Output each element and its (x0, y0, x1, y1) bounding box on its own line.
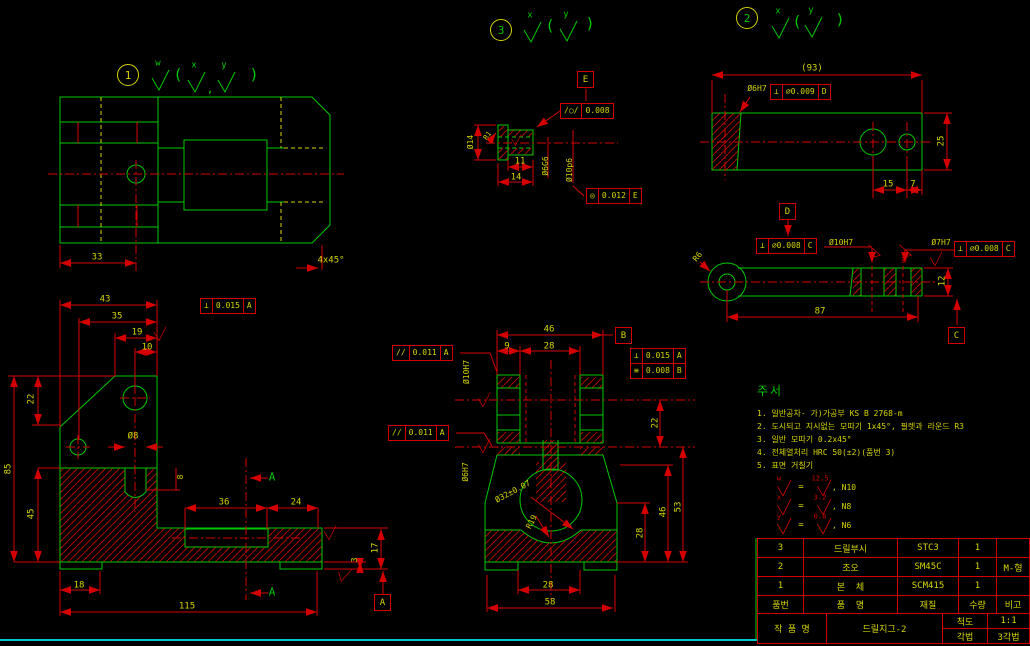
header-material: 재질 (897, 596, 958, 613)
dim-label: 25 (938, 136, 947, 147)
fcf-cell: A (243, 299, 255, 313)
dim-label: 15 (883, 181, 894, 190)
dim-label: Ø6H7 (747, 85, 766, 93)
dim-label: ( (173, 68, 182, 83)
feature-control-frame: ⊥0.015A (630, 348, 686, 364)
part-material: STC3 (897, 539, 958, 557)
view-callout-1: 1 (117, 64, 139, 86)
dim-label: ( (792, 15, 801, 30)
dim-label: 28 (637, 528, 646, 539)
fcf-cell: 0.012 (598, 189, 629, 203)
surface-finish-icon (928, 251, 943, 266)
part-no: 1 (758, 577, 803, 595)
part-no: 2 (758, 558, 803, 576)
header-name: 품 명 (803, 596, 897, 613)
part-row: 1 본 체 SCM415 1 (758, 576, 1029, 595)
feature-control-frame: /○/0.008 (560, 103, 614, 119)
fcf-cell: ⊥ (771, 85, 782, 99)
dim-label: ) (585, 17, 594, 32)
fcf-cell: // (393, 346, 409, 360)
view-callout-2: 2 (736, 7, 758, 29)
part-note (996, 539, 1029, 557)
fcf-cell: ≡ (631, 364, 642, 378)
surface-finish-icon (215, 71, 237, 93)
feature-control-frame: //0.011A (388, 425, 449, 441)
header-no: 품번 (758, 596, 803, 613)
part-qty: 1 (958, 539, 996, 557)
part-note (996, 577, 1029, 595)
part-name: 본 체 (803, 577, 897, 595)
scale-value: 1:1 (987, 614, 1029, 628)
feature-control-frame: ⊥0.015A (200, 298, 256, 314)
datum-label-C: C (948, 327, 965, 344)
dim-label: 3 (351, 558, 359, 563)
dim-label: , (207, 84, 214, 95)
part-qty: 1 (958, 558, 996, 576)
fcf-cell: ∅0.008 (966, 242, 1002, 256)
dim-label: Ø14 (467, 135, 475, 149)
dim-label: 12 (939, 276, 948, 287)
dim-label: 36 (219, 499, 230, 508)
scale-label: 척도 (943, 614, 987, 628)
part-qty: 1 (958, 577, 996, 595)
surface-finish-icon (149, 69, 171, 91)
feature-control-frame: ⊥∅0.008C (756, 238, 817, 254)
dim-label: Ø6H7 (462, 462, 470, 481)
dim-label: (93) (801, 65, 823, 74)
finish-value: 3.2 (814, 495, 827, 502)
dim-label: x (527, 12, 532, 21)
fcf-cell: A (673, 349, 685, 363)
fcf-cell: 0.015 (642, 349, 673, 363)
dim-label: Ø7H7 (931, 239, 950, 247)
fcf-cell: 0.011 (409, 346, 440, 360)
dim-label: 11 (515, 158, 526, 167)
dim-label: 7 (910, 181, 915, 190)
finish-equals: = (798, 503, 803, 512)
dim-label: Ø10p6 (566, 158, 574, 182)
fcf-cell: ∅0.008 (768, 239, 804, 253)
finish-grade: , N6 (832, 522, 851, 530)
datum-label-A: A (374, 594, 391, 611)
surface-finish-icon (510, 134, 522, 146)
dim-label: 35 (112, 313, 123, 322)
fcf-cell: ◎ (587, 189, 598, 203)
dim-label: 19 (132, 329, 143, 338)
finish-letter: x (777, 495, 781, 502)
surface-finish-icon (476, 438, 491, 453)
header-row: 품번 품 명 재질 수량 비고 (758, 595, 1029, 613)
feature-control-frame: //0.011A (392, 345, 453, 361)
dim-label: 28 (543, 582, 554, 591)
dim-label: 18 (74, 582, 85, 591)
fcf-cell: // (389, 426, 405, 440)
surface-finish-icon (185, 71, 207, 93)
dim-label: x (775, 8, 780, 17)
fcf-cell: D (818, 85, 830, 99)
dim-label: y (808, 7, 813, 16)
dim-label: 22 (28, 394, 37, 405)
title-block: 3 드릴부시 STC3 1 2 조오 SM45C 1 M-형 1 본 체 SCM… (757, 538, 1030, 644)
header-note: 비고 (996, 596, 1029, 613)
surface-finish-icon (769, 17, 791, 39)
finish-value: 12.5 (812, 476, 829, 483)
fcf-cell: E (629, 189, 641, 203)
finish-value: 0.8 (814, 514, 827, 521)
dim-label: ) (835, 13, 844, 28)
fcf-cell: A (436, 426, 448, 440)
dim-label: 10 (142, 344, 153, 353)
dim-label: Ø8 (128, 433, 139, 442)
fcf-cell: ⊥ (201, 299, 212, 313)
method-value: 3각법 (987, 629, 1029, 643)
dim-label: 8 (177, 475, 185, 480)
dim-label: ) (249, 68, 258, 83)
surface-finish-icon (557, 20, 579, 42)
finish-grade: , N10 (832, 484, 856, 492)
surface-finish-icon (476, 392, 491, 407)
part-material: SM45C (897, 558, 958, 576)
finish-letter: w (777, 476, 781, 483)
dim-label: 53 (675, 502, 684, 513)
dim-label: x (191, 62, 196, 71)
dim-label: 43 (100, 296, 111, 305)
surface-finish-icon (521, 21, 543, 43)
datum-label-B: B (615, 327, 632, 344)
drawing-title: 드릴지그-2 (826, 614, 942, 643)
dim-label: 24 (291, 499, 302, 508)
notes-section: 주서 1. 일반공차- 가)가공부 KS B 2768-m 2. 도시되고 지시… (757, 382, 964, 472)
fcf-cell: ∅0.009 (782, 85, 818, 99)
project-label: 작 품 명 (758, 614, 826, 643)
dim-label: 45 (28, 509, 37, 520)
surface-finish-icon (802, 16, 824, 38)
part-name: 조오 (803, 558, 897, 576)
dim-label: 17 (372, 543, 381, 554)
dim-label: 115 (179, 603, 195, 612)
dim-label: ( (545, 19, 554, 34)
fcf-cell: C (1002, 242, 1014, 256)
dim-label: 22 (652, 418, 661, 429)
dim-label: 33 (92, 254, 103, 263)
part-note: M-형 (996, 558, 1029, 576)
fcf-cell: B (673, 364, 685, 378)
fcf-cell: 0.015 (212, 299, 243, 313)
dim-label: 14 (511, 174, 522, 183)
notes-title: 주서 (757, 382, 964, 399)
dim-label: Ø10H7 (463, 360, 471, 384)
finish-grade: , N8 (832, 503, 851, 511)
finish-equals: = (798, 484, 803, 493)
datum-label-D: D (779, 203, 796, 220)
part-no: 3 (758, 539, 803, 557)
cad-drawing-canvas: 주서 1. 일반공차- 가)가공부 KS B 2768-m 2. 도시되고 지시… (0, 0, 1030, 646)
header-qty: 수량 (958, 596, 996, 613)
fcf-cell: ⊥ (955, 242, 966, 256)
view-callout-3: 3 (490, 19, 512, 41)
datum-label-E: E (577, 71, 594, 88)
feature-control-frame: ≡0.008B (630, 363, 686, 379)
dim-label: Ø10H7 (829, 239, 853, 247)
feature-control-frame: ⊥∅0.009D (770, 84, 831, 100)
footer-row: 작 품 명 드릴지그-2 척도 1:1 각법 3각법 (758, 613, 1029, 643)
dim-label: w (155, 60, 160, 69)
finish-letter: y (777, 514, 781, 521)
dim-label: A (269, 587, 276, 598)
feature-control-frame: ◎0.012E (586, 188, 642, 204)
dim-label: 58 (545, 599, 556, 608)
note-line: 3. 일반 모따기 0.2x45° (757, 433, 964, 446)
dim-label: y (221, 62, 226, 71)
dim-label: 28 (544, 343, 555, 352)
dim-label: Ø6G6 (542, 156, 550, 175)
fcf-cell: /○/ (561, 104, 581, 118)
dim-label: y (563, 11, 568, 20)
fcf-cell: C (804, 239, 816, 253)
note-line: 2. 도시되고 지시없는 모따기 1x45°, 필렛과 라운드 R3 (757, 420, 964, 433)
fcf-cell: A (440, 346, 452, 360)
surface-finish-icon (322, 525, 337, 540)
dim-label: 46 (544, 326, 555, 335)
dim-label: A (269, 472, 276, 483)
feature-control-frame: ⊥∅0.008C (954, 241, 1015, 257)
dim-label: 46 (660, 507, 669, 518)
fcf-cell: ⊥ (757, 239, 768, 253)
fcf-cell: 0.011 (405, 426, 436, 440)
part-material: SCM415 (897, 577, 958, 595)
part-row: 3 드릴부시 STC3 1 (758, 539, 1029, 557)
dim-label: 9 (504, 343, 509, 352)
note-line: 5. 표면 거칠기 (757, 459, 964, 472)
surface-finish-icon (152, 326, 167, 341)
note-line: 1. 일반공차- 가)가공부 KS B 2768-m (757, 407, 964, 420)
part-row: 2 조오 SM45C 1 M-형 (758, 557, 1029, 576)
dim-label: 87 (815, 308, 826, 317)
note-line: 4. 전체열처리 HRC 50(±2)(품번 3) (757, 446, 964, 459)
fcf-cell: ⊥ (631, 349, 642, 363)
fcf-cell: 0.008 (642, 364, 673, 378)
finish-equals: = (798, 522, 803, 531)
method-label: 각법 (943, 629, 987, 643)
fcf-cell: 0.008 (581, 104, 612, 118)
dim-label: 4x45° (317, 257, 344, 266)
part-name: 드릴부시 (803, 539, 897, 557)
dim-label: 85 (5, 464, 14, 475)
hidden-lines (101, 97, 324, 243)
